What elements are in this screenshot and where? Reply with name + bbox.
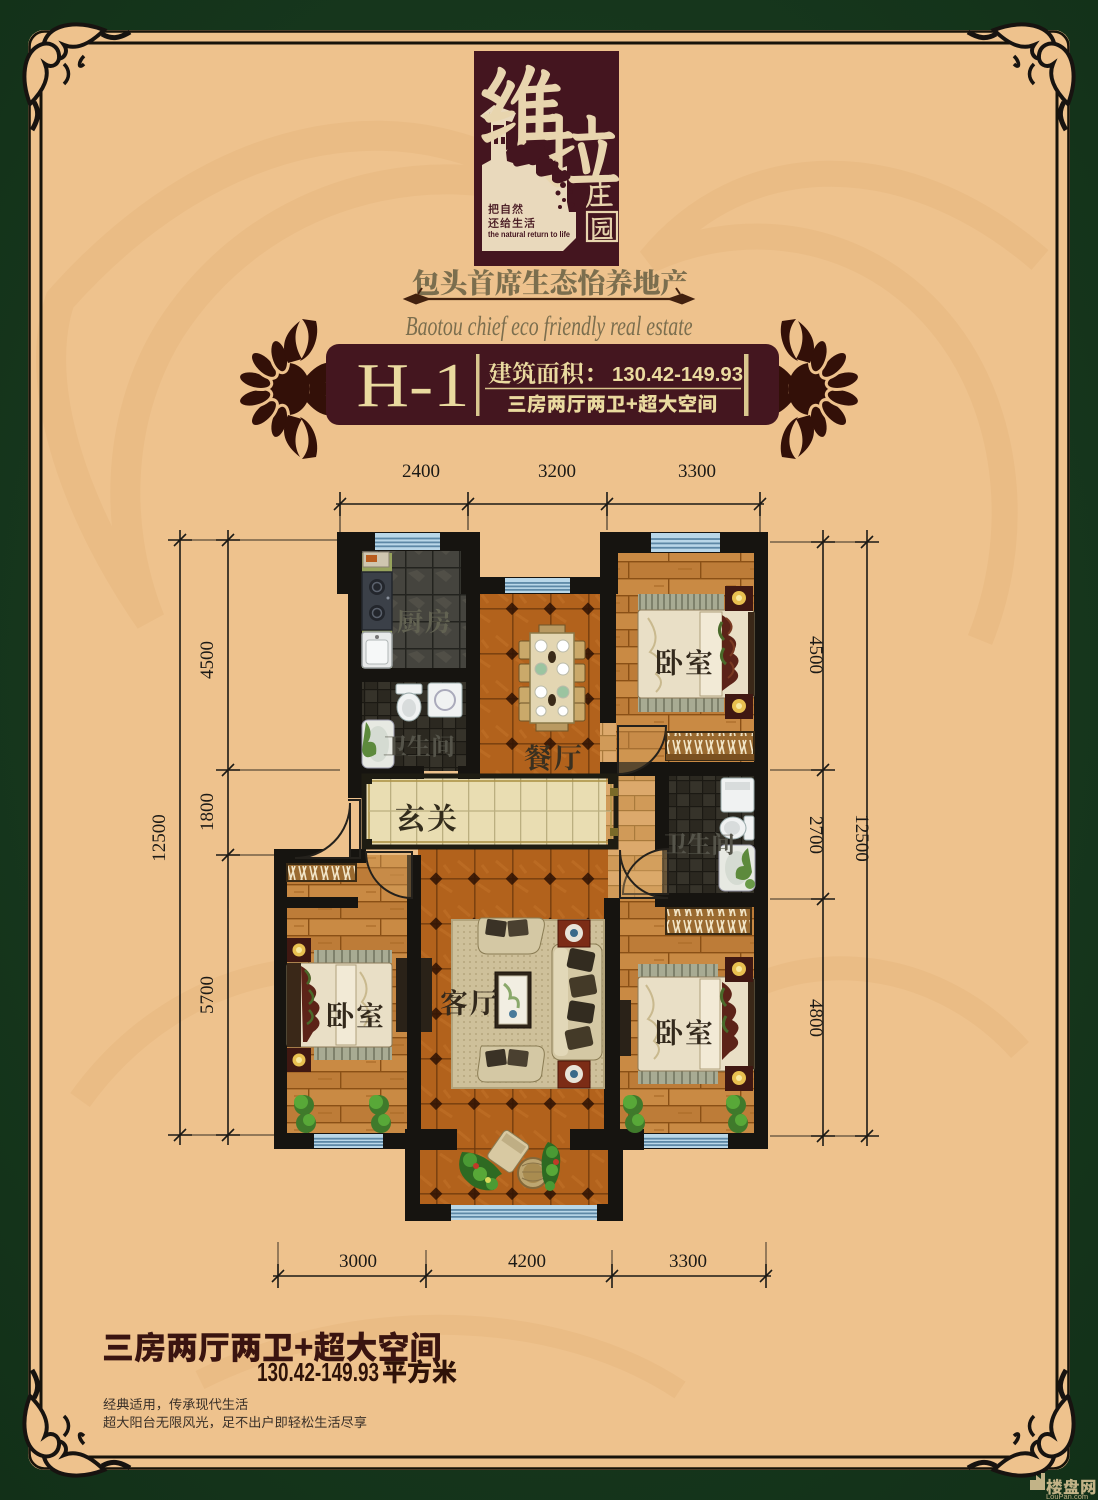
svg-text:2700: 2700 <box>805 816 826 854</box>
svg-text:1800: 1800 <box>197 793 218 831</box>
svg-text:130.42-149.93: 130.42-149.93 <box>257 1357 379 1387</box>
svg-text:LouPan.com: LouPan.com <box>1046 1492 1088 1500</box>
svg-text:12500: 12500 <box>149 814 170 862</box>
svg-text:3300: 3300 <box>669 1251 707 1272</box>
svg-text:H-1: H-1 <box>357 352 470 420</box>
svg-text:4200: 4200 <box>508 1251 546 1272</box>
svg-text:Baotou chief eco friendly real: Baotou chief eco friendly real estate <box>406 311 693 341</box>
svg-text:4500: 4500 <box>805 636 826 674</box>
svg-text:3200: 3200 <box>538 461 576 482</box>
svg-text:5700: 5700 <box>197 976 218 1014</box>
svg-text:4500: 4500 <box>197 641 218 679</box>
svg-text:12500: 12500 <box>851 814 872 862</box>
svg-text:130.42-149.93: 130.42-149.93 <box>612 364 743 386</box>
svg-text:3000: 3000 <box>339 1251 377 1272</box>
svg-text:3300: 3300 <box>678 461 716 482</box>
svg-text:4800: 4800 <box>805 999 826 1037</box>
svg-text:the natural return to life: the natural return to life <box>488 229 570 239</box>
svg-text:2400: 2400 <box>402 461 440 482</box>
